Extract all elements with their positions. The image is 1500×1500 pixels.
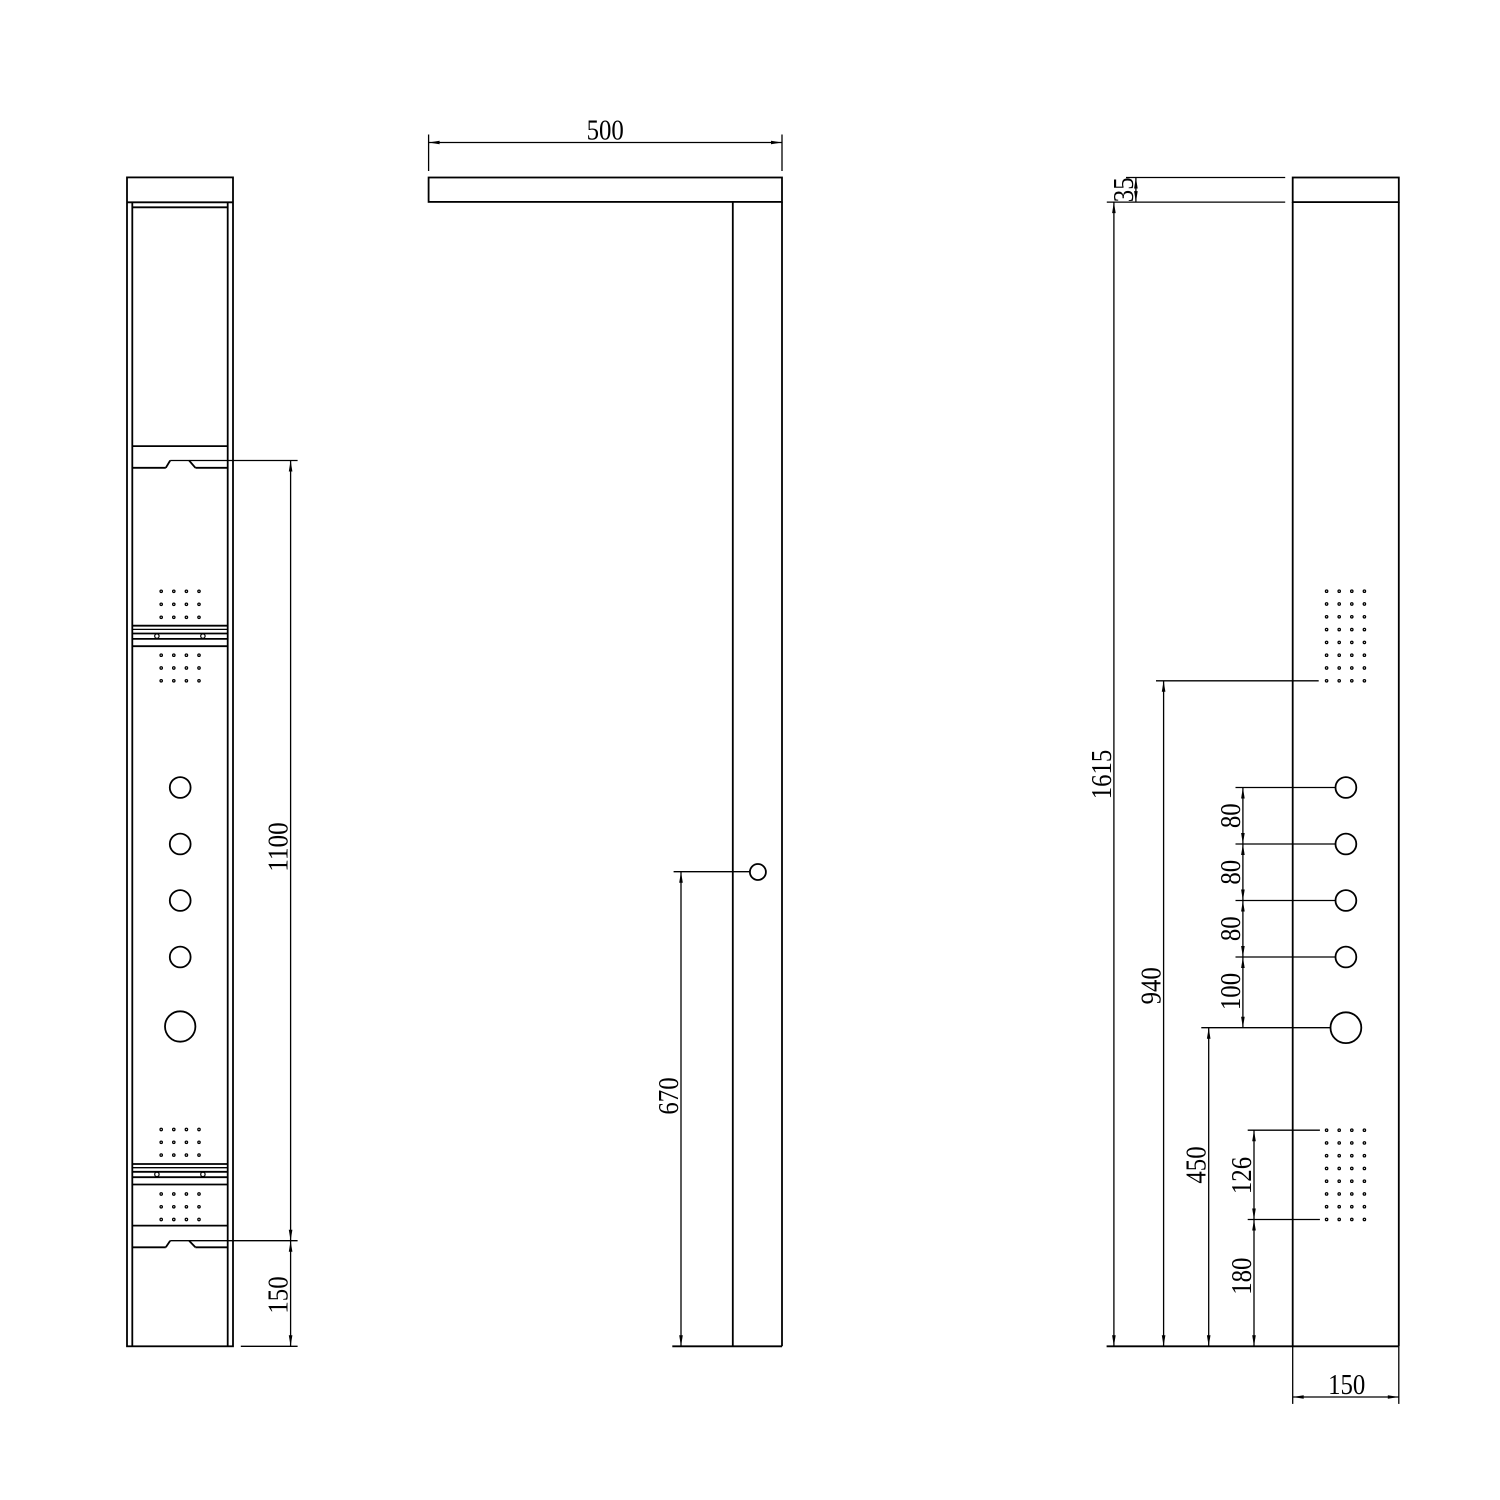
- svg-text:150: 150: [1328, 1370, 1365, 1401]
- svg-text:670: 670: [654, 1077, 685, 1114]
- svg-text:100: 100: [1216, 973, 1247, 1010]
- svg-text:80: 80: [1216, 916, 1247, 941]
- svg-text:80: 80: [1216, 860, 1247, 885]
- svg-text:1615: 1615: [1087, 750, 1118, 800]
- svg-text:35: 35: [1109, 177, 1140, 202]
- svg-text:180: 180: [1227, 1258, 1258, 1295]
- svg-text:1100: 1100: [264, 822, 295, 872]
- svg-text:940: 940: [1137, 967, 1168, 1004]
- svg-text:450: 450: [1182, 1146, 1213, 1183]
- svg-text:126: 126: [1227, 1157, 1258, 1194]
- svg-text:80: 80: [1216, 803, 1247, 828]
- svg-text:150: 150: [264, 1276, 295, 1313]
- svg-text:500: 500: [587, 116, 624, 147]
